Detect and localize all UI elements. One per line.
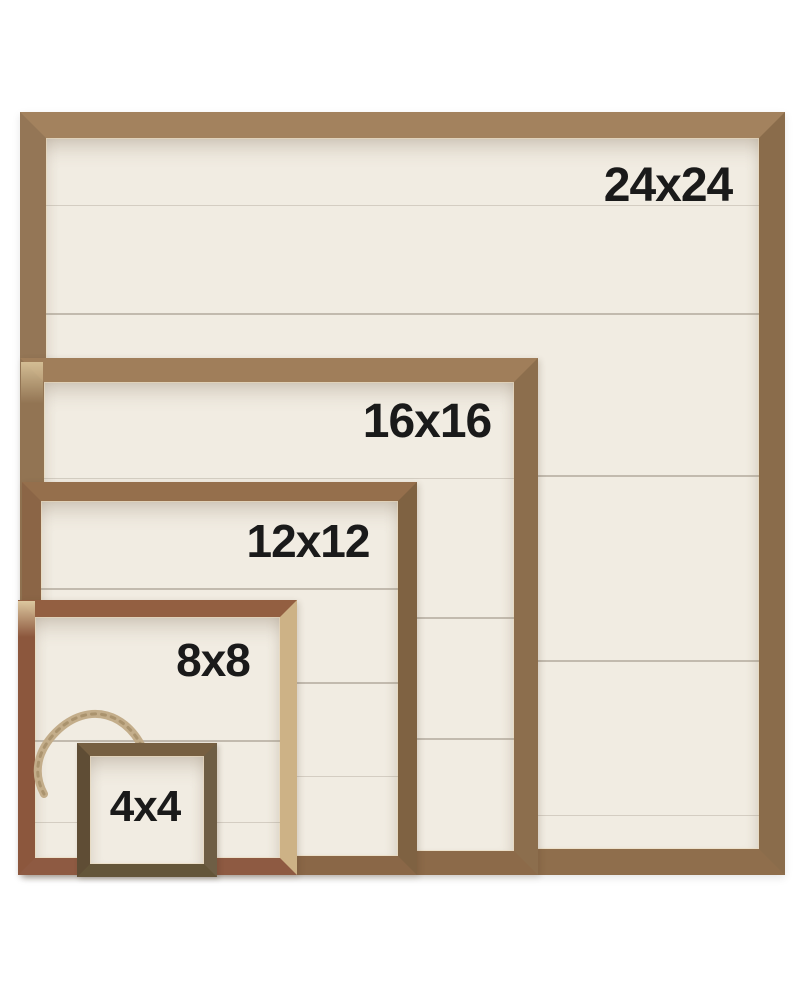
frame-4x4: 4x4 (77, 743, 217, 877)
product-photo: 24x24 16x16 12x12 8x8 (0, 0, 800, 991)
shiplap-seam (41, 588, 398, 590)
shiplap-seam (46, 313, 759, 315)
size-label-16x16: 16x16 (363, 398, 491, 446)
shiplap-seam (35, 740, 280, 742)
size-label-4x4: 4x4 (110, 785, 180, 829)
size-label-8x8: 8x8 (176, 637, 250, 683)
shiplap-seam (44, 478, 514, 479)
shiplap-panel-4x4: 4x4 (90, 756, 204, 864)
size-label-24x24: 24x24 (604, 162, 732, 210)
size-label-12x12: 12x12 (247, 518, 370, 564)
